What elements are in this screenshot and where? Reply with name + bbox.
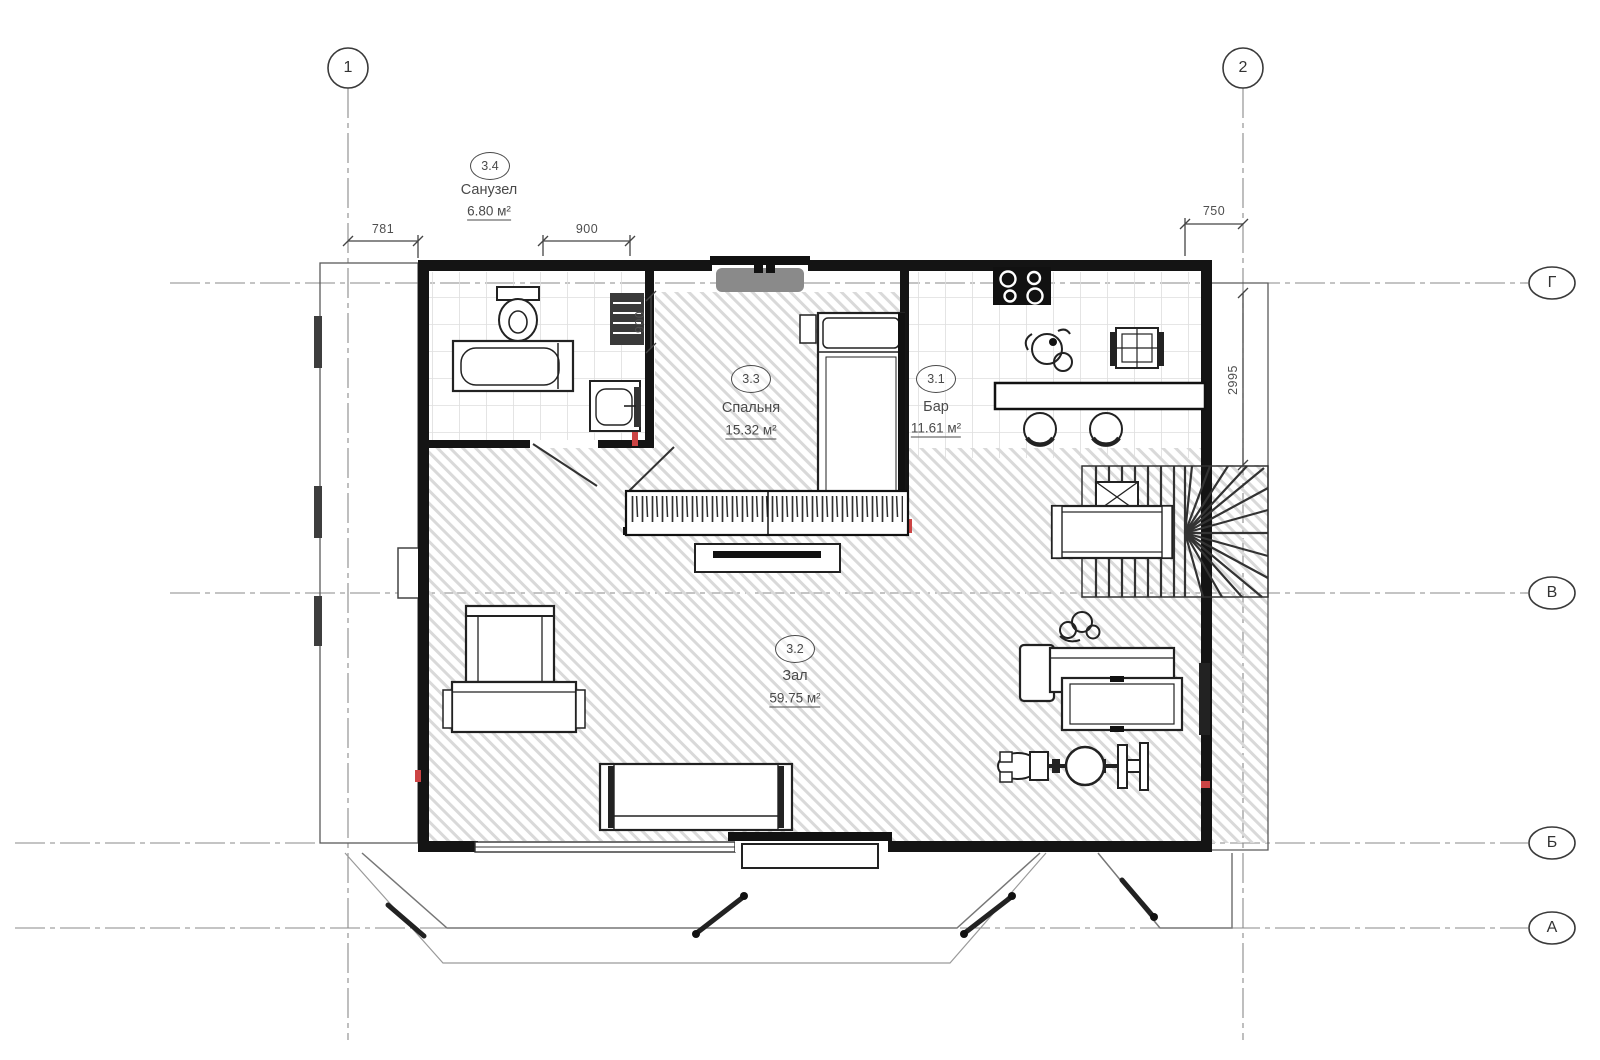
room-name-hall: Зал [782, 668, 807, 684]
dim-900-bathroom: 900 [633, 311, 647, 333]
bar-counter [995, 383, 1205, 409]
bar-appliance [1110, 328, 1164, 368]
wall-bottom-a [418, 841, 478, 852]
room-area-hall: 59.75 м² [769, 691, 820, 708]
floor-plan-canvas: 1 2 Г В Б А 781 900 750 900 2995 3.4 Сан… [0, 0, 1600, 1060]
room-tag-hall: 3.2 [775, 635, 815, 663]
axis-label-a: А [1547, 919, 1558, 937]
axis-label-2: 2 [1239, 59, 1248, 77]
glazed-wall-band [475, 842, 735, 852]
wall-top-left [418, 260, 712, 271]
sink [590, 381, 641, 431]
tv-stand [695, 544, 840, 572]
table [1062, 676, 1182, 732]
room-tag-bedroom: 3.3 [731, 365, 771, 393]
wall-bathroom-right [645, 260, 654, 448]
axis-label-1: 1 [344, 59, 353, 77]
coffee-table [443, 682, 585, 732]
bathtub [453, 341, 573, 391]
dim-781: 781 [372, 222, 394, 236]
axis-label-g: Г [1548, 274, 1557, 292]
floor-plan-drawing [0, 0, 1600, 1060]
wall-bottom-b [888, 841, 1212, 852]
wall-bathroom-bottom-a [418, 440, 530, 448]
room-area-bar: 11.61 м² [911, 421, 961, 438]
dim-2995: 2995 [1226, 365, 1240, 395]
room-tag-bathroom: 3.4 [470, 152, 510, 180]
right-wall-window [1199, 663, 1210, 735]
dim-900-top: 900 [576, 222, 598, 236]
stove [993, 267, 1051, 305]
room-name-bar: Бар [923, 399, 949, 415]
axis-label-v: В [1547, 584, 1558, 602]
terrace-door-knobs [692, 892, 1158, 938]
armchair [466, 606, 554, 682]
toilet [497, 287, 539, 341]
axis-label-b: Б [1547, 834, 1558, 852]
room-area-bathroom: 6.80 м² [467, 204, 511, 221]
bedroom-window [710, 256, 810, 292]
living-window [728, 832, 892, 868]
wall-bathroom-bottom-b [598, 440, 654, 448]
sofa [600, 764, 792, 830]
right-strip-hatch-floor [1212, 465, 1268, 843]
wardrobe [626, 491, 908, 535]
room-area-bedroom: 15.32 м² [725, 423, 776, 440]
room-name-bedroom: Спальня [722, 400, 780, 416]
wall-left [418, 260, 429, 852]
dim-750: 750 [1203, 204, 1225, 218]
room-name-bathroom: Санузел [461, 182, 518, 198]
room-tag-bar: 3.1 [916, 365, 956, 393]
terrace-outlines [345, 853, 1232, 963]
